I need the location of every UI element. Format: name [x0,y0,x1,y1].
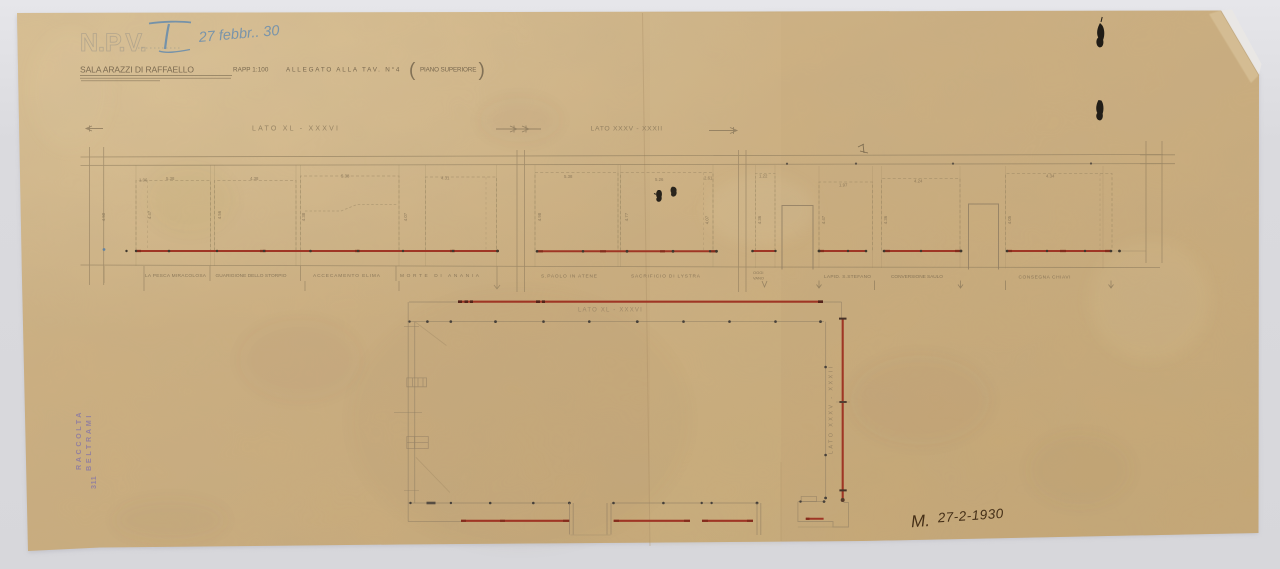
svg-text:OGGI: OGGI [753,270,763,275]
svg-text:SACRIFICIO DI LYSTRA: SACRIFICIO DI LYSTRA [631,274,701,280]
svg-text:(: ( [409,60,416,81]
svg-text:5.38: 5.38 [341,174,350,179]
svg-text:LATO XXXV - XXXII: LATO XXXV - XXXII [829,366,835,454]
svg-text:5.38: 5.38 [564,174,573,179]
svg-text:MORTE DI ANANIA: MORTE DI ANANIA [400,273,480,279]
svg-text:4.07: 4.07 [403,212,408,221]
svg-text:5.26: 5.26 [655,177,664,182]
svg-text:PIANO SUPERIORE: PIANO SUPERIORE [420,67,477,74]
svg-text:4.05: 4.05 [1007,215,1012,224]
svg-text:S.PAOLO IN ATENE: S.PAOLO IN ATENE [541,274,597,280]
svg-text:311: 311 [89,476,98,489]
svg-text:LATO XL - XXXVI: LATO XL - XXXVI [252,126,340,133]
svg-text:LATO XXXV - XXXII: LATO XXXV - XXXII [591,126,664,133]
svg-text:1.22: 1.22 [759,174,768,179]
svg-text:LATO XL - XXXVI: LATO XL - XXXVI [578,308,643,314]
svg-text:LAPID. S.STEFANO: LAPID. S.STEFANO [824,274,871,280]
svg-text:4.38: 4.38 [250,176,259,181]
svg-text:4.98: 4.98 [537,212,542,221]
svg-text:5.38: 5.38 [166,176,175,181]
svg-text:4.31: 4.31 [441,176,450,181]
svg-text:LA PESCA MIRACOLOSA: LA PESCA MIRACOLOSA [145,273,207,279]
svg-text:4.56: 4.56 [217,210,222,219]
svg-text:4.38: 4.38 [301,212,306,221]
svg-text:4.07: 4.07 [705,215,710,224]
svg-text:4.24: 4.24 [914,179,923,184]
svg-text:2.61: 2.61 [704,176,713,181]
svg-text:4.77: 4.77 [624,212,629,221]
svg-text:4.36: 4.36 [757,215,762,224]
svg-text:N.P.V.: N.P.V. [80,29,147,57]
svg-text:4.36: 4.36 [883,215,888,224]
svg-text:): ) [479,60,485,81]
svg-text:M.: M. [910,511,930,531]
svg-text:ALLEGATO ALLA TAV. N°4: ALLEGATO ALLA TAV. N°4 [286,66,400,74]
svg-text:SALA ARAZZI DI RAFFAELLO: SALA ARAZZI DI RAFFAELLO [80,65,195,75]
svg-text:BELTRAMI: BELTRAMI [84,415,93,471]
svg-text:1.97: 1.97 [839,183,848,188]
svg-text:VANO: VANO [753,276,764,281]
svg-text:4.47: 4.47 [147,210,152,219]
svg-text:CONSEGNA CHIAVI: CONSEGNA CHIAVI [1019,275,1071,281]
svg-text:ACCECAMENTO ELIMA: ACCECAMENTO ELIMA [313,273,381,279]
svg-text:RACCOLTA: RACCOLTA [74,412,83,470]
svg-text:1.06: 1.06 [139,178,148,183]
svg-text:RAPP 1:100: RAPP 1:100 [233,67,269,74]
svg-text:CONVERSIONE SAULO: CONVERSIONE SAULO [891,274,943,280]
svg-text:4.47: 4.47 [821,215,826,224]
svg-text:GUARIGIONE DELLO STORPIO: GUARIGIONE DELLO STORPIO [216,273,287,279]
svg-text:4.50: 4.50 [101,212,106,221]
svg-text:4.34: 4.34 [1046,174,1055,179]
